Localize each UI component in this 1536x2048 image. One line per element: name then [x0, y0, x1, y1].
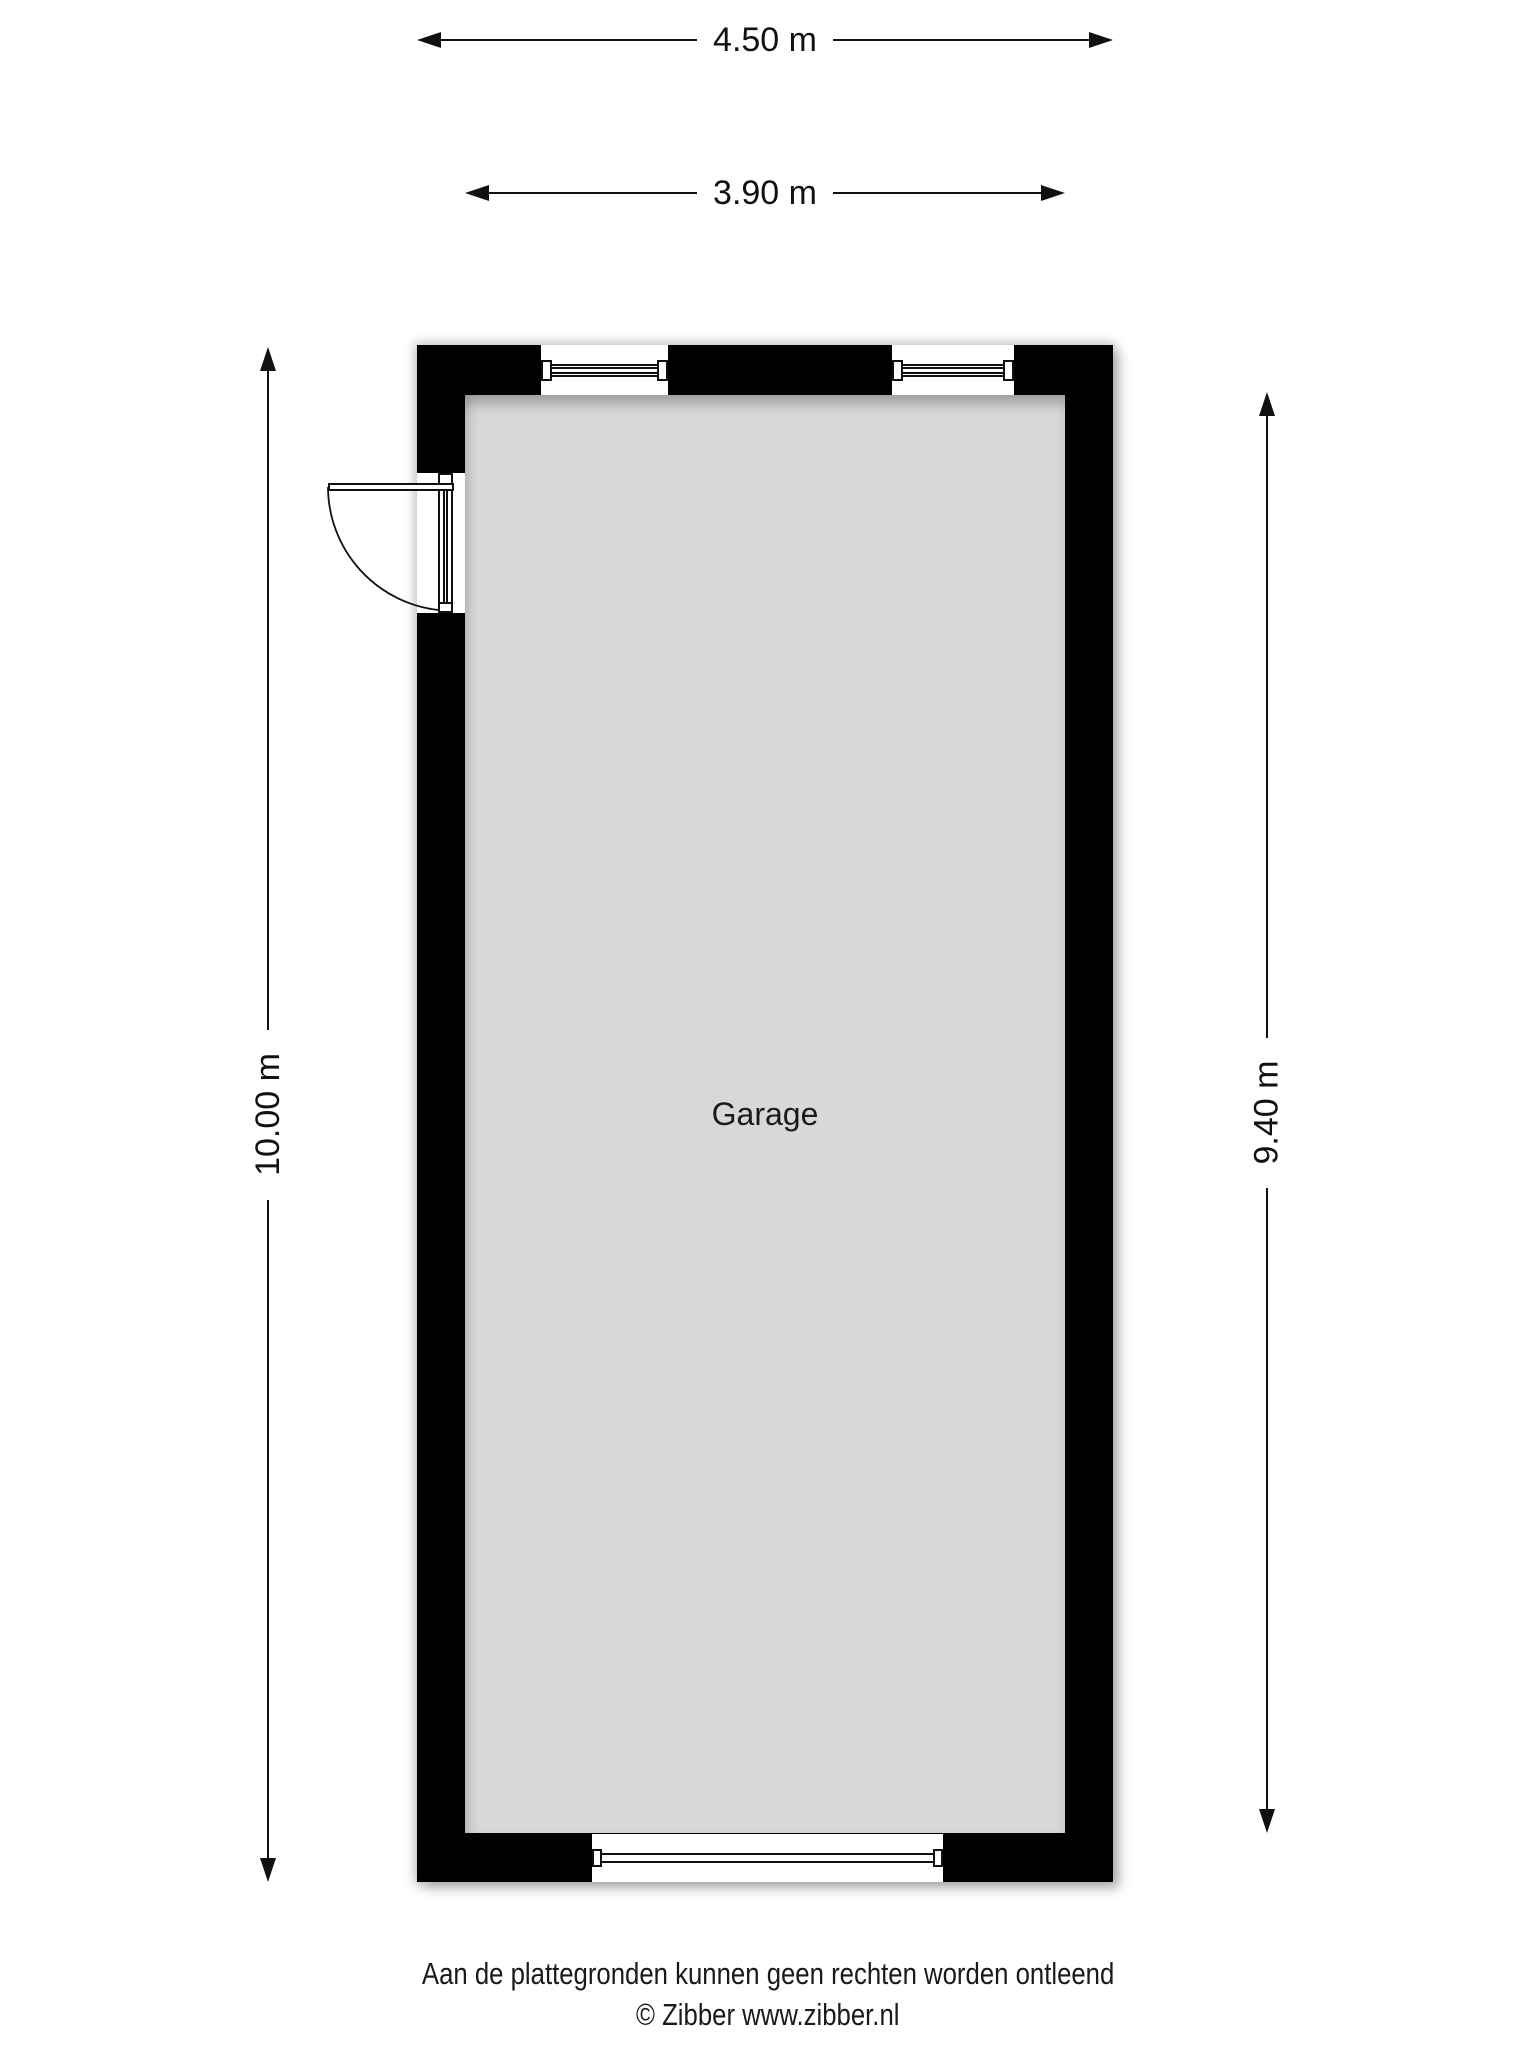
- arrowhead-right-icon: [1089, 32, 1113, 48]
- dim-outer-width-label: 4.50 m: [697, 27, 833, 53]
- dim-outer-height-label: 10.00 m: [249, 1053, 288, 1176]
- footer-disclaimer: Aan de plattegronden kunnen geen rechten…: [422, 1953, 1114, 1994]
- dim-line-segment: [441, 39, 697, 41]
- window-symbol: [892, 361, 1014, 379]
- dim-inner-width: 3.90 m: [465, 180, 1065, 206]
- garage-door-symbol: [602, 1853, 933, 1863]
- arrowhead-up-icon: [1259, 392, 1275, 416]
- door-swing-arc-icon: [320, 480, 465, 625]
- garage-door-cap-icon: [933, 1849, 943, 1867]
- window-top-left: [541, 345, 668, 395]
- arrowhead-left-icon: [465, 185, 489, 201]
- floorplan-page: 4.50 m 3.90 m 10.00 m 9.40 m: [0, 0, 1536, 2048]
- window-glass-icon: [552, 364, 657, 377]
- window-cap-icon: [657, 360, 668, 381]
- dim-line-segment: [833, 192, 1041, 194]
- garage-door-cap-icon: [592, 1849, 602, 1867]
- arrowhead-left-icon: [417, 32, 441, 48]
- window-cap-icon: [1003, 360, 1014, 381]
- window-cap-icon: [541, 360, 552, 381]
- window-cap-icon: [892, 360, 903, 381]
- dim-line-segment: [267, 1200, 269, 1859]
- footer-copyright-line: © Zibber www.zibber.nl: [0, 1994, 1536, 2035]
- window-glass-icon: [903, 364, 1003, 377]
- dim-inner-width-label: 3.90 m: [697, 180, 833, 206]
- arrowhead-right-icon: [1041, 185, 1065, 201]
- arrowhead-up-icon: [260, 347, 276, 371]
- dim-outer-width: 4.50 m: [417, 27, 1113, 53]
- room-label: Garage: [465, 1096, 1065, 1133]
- arrowhead-down-icon: [260, 1858, 276, 1882]
- dim-label-gap: 9.40 m: [1215, 1038, 1319, 1188]
- arrowhead-down-icon: [1259, 1809, 1275, 1833]
- dim-inner-height: 9.40 m: [1257, 392, 1277, 1833]
- dim-line-segment: [267, 371, 269, 1030]
- footer-copyright: © Zibber www.zibber.nl: [636, 1994, 899, 2035]
- footer-disclaimer-line: Aan de plattegronden kunnen geen rechten…: [0, 1953, 1536, 1994]
- dim-line-segment: [489, 192, 697, 194]
- window-symbol: [541, 361, 668, 379]
- dim-line-segment: [1266, 1188, 1268, 1810]
- footer: Aan de plattegronden kunnen geen rechten…: [0, 1953, 1536, 2035]
- dim-line-segment: [1266, 416, 1268, 1038]
- window-top-right: [892, 345, 1014, 395]
- dim-line-segment: [833, 39, 1089, 41]
- dim-label-gap: 10.00 m: [207, 1030, 330, 1200]
- dim-outer-height: 10.00 m: [258, 347, 278, 1882]
- garage-door-opening: [592, 1834, 943, 1882]
- dim-inner-height-label: 9.40 m: [1248, 1061, 1287, 1165]
